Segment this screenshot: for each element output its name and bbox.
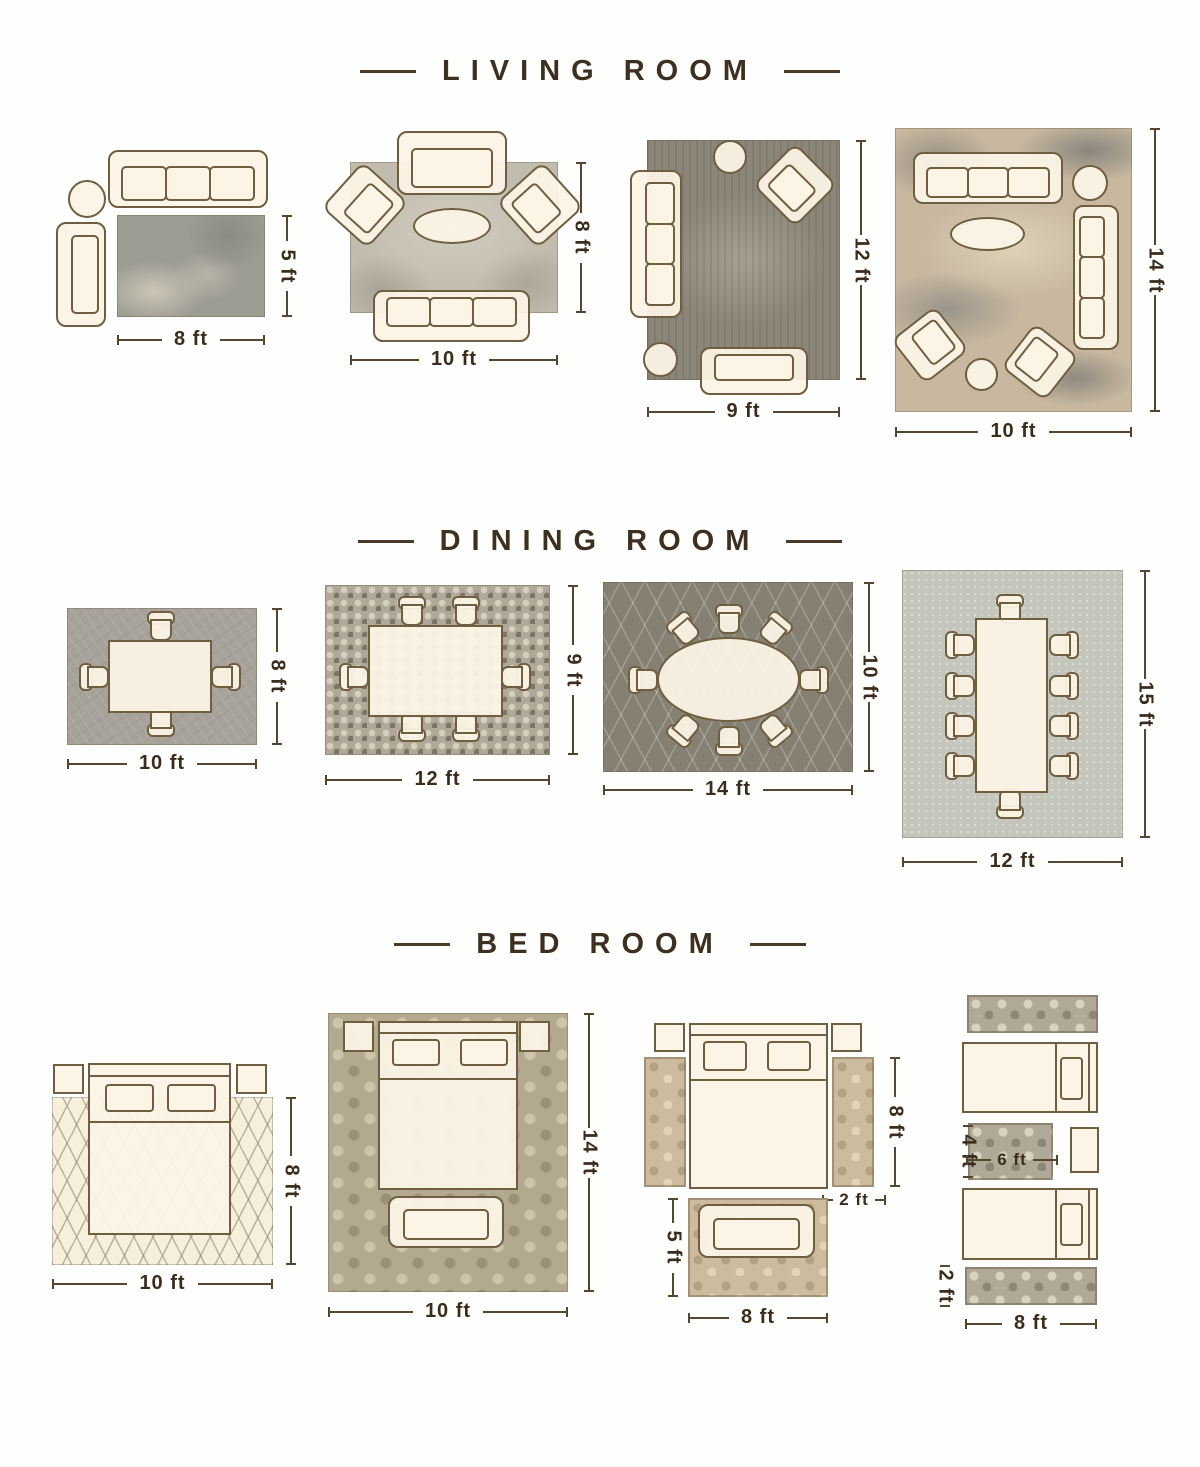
dim-height: 5 ft (276, 215, 298, 317)
blanket-fold-line (1055, 1044, 1057, 1111)
dining-table-oval (657, 637, 800, 722)
headboard-line (691, 1034, 826, 1036)
dining-chair (211, 663, 241, 691)
blanket-fold-line (90, 1121, 229, 1123)
pillow (767, 1041, 811, 1071)
dim-bench-rug-height: 5 ft (662, 1198, 684, 1297)
bed (378, 1021, 518, 1190)
nightstand-left (343, 1021, 374, 1052)
nightstand-left (654, 1023, 685, 1052)
title-dash-left (358, 540, 414, 543)
dining-chair (945, 712, 975, 740)
dining-chair (1049, 712, 1079, 740)
runner-rug-right (832, 1057, 874, 1187)
side-table (965, 358, 998, 391)
rug-size-guide: LIVING ROOM 5 ft 8 ft 8 ft 10 ft (0, 0, 1200, 1467)
side-table (643, 342, 678, 377)
dim-height: 15 ft (1134, 570, 1156, 838)
dining-table (368, 625, 503, 717)
title-dash-right (786, 540, 842, 543)
dim-width: 10 ft (350, 348, 558, 371)
seat-cushions (926, 167, 1050, 198)
loveseat-bottom (700, 347, 808, 395)
dining-chair (715, 726, 743, 756)
nightstand-right (236, 1064, 267, 1094)
seat-cushions (510, 181, 563, 235)
seat-cushions (411, 148, 493, 188)
pillow (1060, 1203, 1083, 1246)
dim-width: 12 ft (325, 768, 550, 791)
dim-height: 12 ft (850, 140, 872, 380)
pillow (1060, 1057, 1083, 1100)
sofa-three-seat (373, 290, 530, 342)
dining-chair (628, 666, 658, 694)
pillow (460, 1039, 508, 1066)
seat-cushions (713, 1218, 800, 1250)
seat-cushions (910, 318, 958, 367)
sofa-three-seat (108, 150, 268, 208)
nightstand-right (519, 1021, 550, 1052)
loveseat-top (397, 131, 507, 195)
dim-width: 10 ft (67, 752, 257, 775)
dim-height: 14 ft (1144, 128, 1166, 412)
nightstand-right (831, 1023, 862, 1052)
dim-height: 8 ft (570, 162, 592, 313)
dining-chair (799, 666, 829, 694)
seat-cushions (714, 354, 794, 381)
blanket-fold-line (691, 1079, 826, 1081)
dim-width: 14 ft (603, 778, 853, 801)
loveseat-vertical (56, 222, 106, 327)
sofa-three-seat-vertical (630, 170, 682, 318)
side-table (1072, 165, 1108, 201)
dim-height: 9 ft (562, 585, 584, 755)
dining-chair (945, 752, 975, 780)
dining-chair (339, 663, 369, 691)
coffee-table-oval (413, 208, 491, 244)
dim-width: 10 ft (52, 1272, 273, 1295)
headboard-line (1088, 1190, 1090, 1258)
bench (388, 1196, 504, 1248)
dining-chair (715, 604, 743, 634)
dim-width: 10 ft (328, 1300, 568, 1323)
bed (88, 1063, 231, 1235)
dim-width: 9 ft (647, 400, 840, 423)
dim-bench-rug-width: 8 ft (688, 1306, 828, 1329)
headboard-line (1088, 1044, 1090, 1111)
seat-cushions (71, 235, 99, 314)
seat-cushions (645, 182, 675, 306)
dim-height: 14 ft (578, 1013, 600, 1292)
dining-chair (147, 611, 175, 641)
dining-chair (452, 596, 480, 626)
dining-chair (1049, 631, 1079, 659)
pillow (703, 1041, 747, 1071)
title-dash-left (394, 943, 450, 946)
dining-chair (79, 663, 109, 691)
dim-height: 8 ft (280, 1097, 302, 1265)
sofa-three-seat-vertical (1073, 205, 1119, 350)
coffee-table-oval (950, 217, 1025, 251)
dining-chair (1049, 672, 1079, 700)
section-title-text: DINING ROOM (440, 525, 761, 558)
dining-chair (501, 663, 531, 691)
dim-height: 10 ft (858, 582, 880, 772)
seat-cushions (1079, 216, 1105, 339)
dining-chair (945, 672, 975, 700)
living-rug-8x5 (117, 215, 265, 317)
dining-chair (996, 789, 1024, 819)
side-table (713, 140, 747, 174)
bed (689, 1023, 828, 1189)
runner-rug-left (644, 1057, 686, 1187)
title-dash-right (750, 943, 806, 946)
dining-chair (1049, 752, 1079, 780)
pillow (392, 1039, 440, 1066)
section-title-living-room: LIVING ROOM (0, 55, 1200, 88)
dining-chair (945, 631, 975, 659)
dim-runner-length: 8 ft (965, 1312, 1097, 1335)
title-dash-right (784, 70, 840, 73)
blanket-fold-line (380, 1078, 516, 1080)
nightstand-left (53, 1064, 84, 1094)
seat-cushions (766, 162, 818, 214)
twin-bed (962, 1042, 1098, 1113)
dim-runner-width: 2 ft (934, 1265, 956, 1307)
dining-chair (398, 596, 426, 626)
blanket-fold-line (1055, 1190, 1057, 1258)
sofa-three-seat (913, 152, 1063, 204)
section-title-text: LIVING ROOM (442, 55, 758, 88)
headboard-line (90, 1075, 229, 1077)
dim-height: 8 ft (266, 608, 288, 745)
dining-table (108, 640, 212, 713)
seat-cushions (386, 297, 517, 327)
dim-width: 12 ft (902, 850, 1123, 873)
runner-rug-bottom (965, 1267, 1097, 1305)
section-title-text: BED ROOM (476, 928, 724, 961)
dim-bedside-rug-width: 6 ft (966, 1150, 1058, 1170)
seat-cushions (1013, 335, 1061, 384)
pillow (105, 1084, 154, 1112)
dim-runner-height: 8 ft (884, 1057, 906, 1187)
dim-runner-width: 2 ft (822, 1190, 886, 1210)
seat-cushions (121, 166, 255, 201)
title-dash-left (360, 70, 416, 73)
runner-rug-top (967, 995, 1098, 1033)
section-title-dining-room: DINING ROOM (0, 525, 1200, 558)
twin-bed (962, 1188, 1098, 1260)
seat-cushions (403, 1209, 489, 1240)
dining-table-long (975, 618, 1048, 793)
headboard-line (380, 1032, 516, 1034)
nightstand (1070, 1127, 1099, 1173)
bench (698, 1204, 815, 1258)
dim-width: 10 ft (895, 420, 1132, 443)
pillow (167, 1084, 216, 1112)
side-table (68, 180, 106, 218)
dim-width: 8 ft (117, 328, 265, 351)
section-title-bed-room: BED ROOM (0, 928, 1200, 961)
